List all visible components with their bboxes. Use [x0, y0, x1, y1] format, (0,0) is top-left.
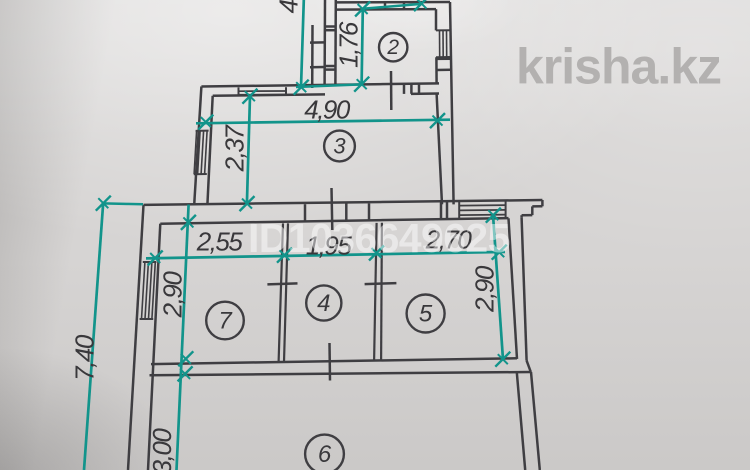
svg-text:ID1036649625: ID1036649625 [248, 215, 510, 261]
svg-text:6: 6 [318, 441, 332, 468]
svg-text:2: 2 [386, 36, 399, 59]
svg-text:2,90: 2,90 [157, 271, 187, 319]
svg-text:krisha.kz: krisha.kz [516, 39, 721, 95]
svg-text:4,: 4, [273, 0, 303, 13]
svg-text:4,90: 4,90 [304, 94, 351, 124]
svg-text:5: 5 [419, 300, 433, 327]
svg-text:2,90: 2,90 [469, 265, 499, 313]
svg-text:4: 4 [317, 290, 330, 317]
svg-text:2,37: 2,37 [219, 124, 249, 173]
svg-text:7,40: 7,40 [69, 334, 99, 381]
svg-text:3,00: 3,00 [147, 428, 177, 470]
svg-text:3: 3 [333, 133, 346, 158]
svg-text:7: 7 [218, 307, 233, 334]
svg-text:1,76: 1,76 [334, 21, 364, 68]
svg-text:2,55: 2,55 [196, 226, 244, 256]
